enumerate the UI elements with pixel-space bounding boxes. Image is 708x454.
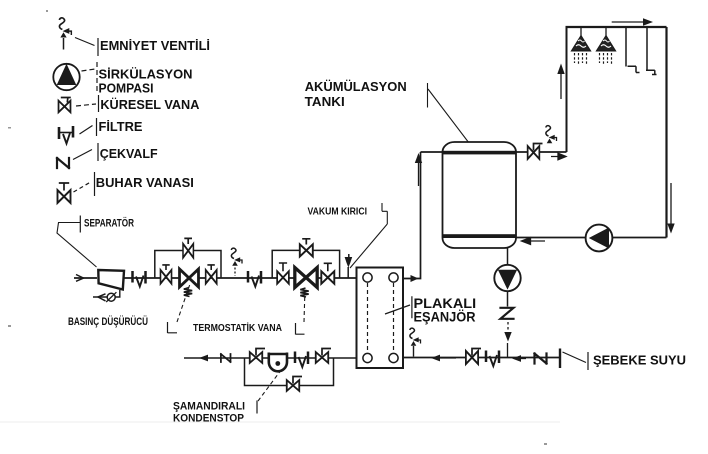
svg-text:KONDENSTOP: KONDENSTOP <box>173 413 244 425</box>
svg-text:AKÜMÜLASYON: AKÜMÜLASYON <box>305 79 407 94</box>
svg-text:KÜRESEL VANA: KÜRESEL VANA <box>100 97 200 112</box>
svg-text:SEPARATÖR: SEPARATÖR <box>84 217 134 230</box>
svg-text:ŞEBEKE SUYU: ŞEBEKE SUYU <box>593 354 686 368</box>
svg-text:BUHAR VANASI: BUHAR VANASI <box>96 175 194 190</box>
svg-text:EŞANJÖR: EŞANJÖR <box>414 309 476 325</box>
svg-text:FİLTRE: FİLTRE <box>99 119 143 134</box>
svg-text:EMNİYET VENTİLİ: EMNİYET VENTİLİ <box>100 38 210 53</box>
svg-text:SİRKÜLASYON: SİRKÜLASYON <box>99 67 193 82</box>
svg-text:ÇEKVALF: ÇEKVALF <box>100 146 158 161</box>
svg-text:TANKI: TANKI <box>305 94 345 109</box>
svg-text:TERMOSTATİK VANA: TERMOSTATİK VANA <box>193 321 282 334</box>
svg-text:BASINÇ DÜŞÜRÜCÜ: BASINÇ DÜŞÜRÜCÜ <box>68 315 148 328</box>
svg-text:VAKUM KIRICI: VAKUM KIRICI <box>308 206 368 218</box>
svg-text:ŞAMANDIRALI: ŞAMANDIRALI <box>173 401 245 413</box>
svg-text:POMPASI: POMPASI <box>99 81 154 96</box>
